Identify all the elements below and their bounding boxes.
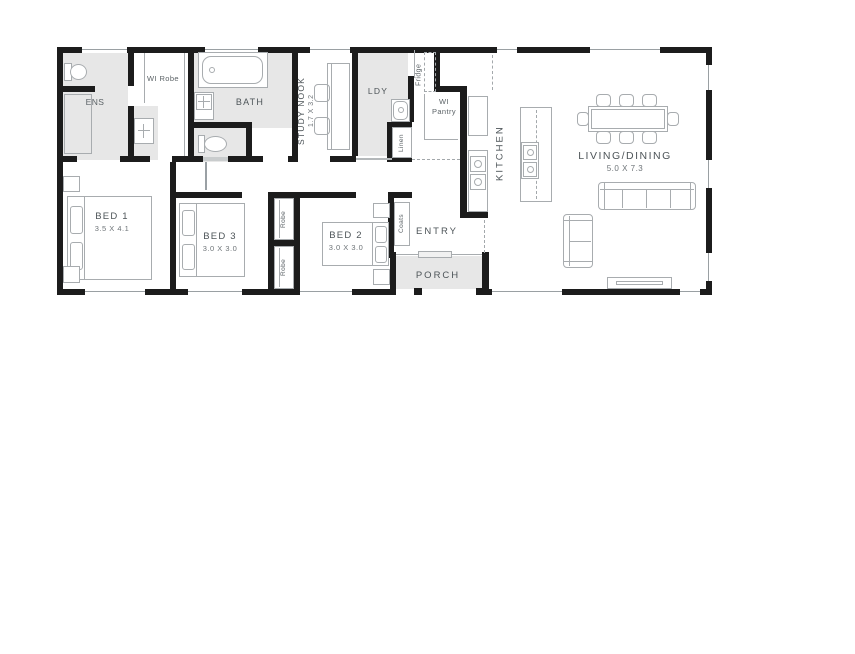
porch-post bbox=[414, 288, 422, 295]
cased-opening bbox=[412, 159, 460, 160]
laundry-tub-drain bbox=[398, 107, 404, 113]
wall-segment bbox=[57, 289, 712, 295]
robe-shelf-line bbox=[144, 53, 145, 103]
basin bbox=[196, 94, 212, 110]
room-label-ldy: LDY bbox=[358, 86, 398, 97]
room-label-bath: BATH bbox=[230, 97, 270, 109]
toilet-bowl bbox=[204, 136, 227, 152]
dining-chair bbox=[642, 94, 657, 107]
sofa-armrest bbox=[563, 220, 593, 221]
room-label-ens: ENS bbox=[75, 97, 115, 108]
wall-segment bbox=[170, 162, 176, 295]
wall-segment bbox=[194, 122, 252, 128]
cased-opening bbox=[492, 55, 493, 90]
room-dims-bed2: 3.0 X 3.0 bbox=[316, 243, 376, 252]
wall-segment bbox=[246, 122, 252, 158]
oven-knob bbox=[474, 160, 482, 168]
wall-segment bbox=[120, 156, 150, 162]
room-label-entry: ENTRY bbox=[407, 226, 467, 238]
window bbox=[590, 47, 660, 53]
wall-segment bbox=[460, 212, 488, 218]
window bbox=[706, 253, 712, 281]
wall-segment bbox=[482, 252, 489, 290]
room-dims-bed1: 3.5 X 4.1 bbox=[82, 224, 142, 233]
basin-cross bbox=[198, 101, 210, 102]
dining-chair bbox=[619, 94, 634, 107]
room-label-living-dining: LIVING/DINING bbox=[565, 150, 685, 164]
room-label-kitchen: KITCHEN bbox=[494, 116, 507, 190]
bed-headboard-line bbox=[84, 196, 85, 280]
room-label-study-nook: STUDY NOOK bbox=[296, 64, 307, 158]
dining-chair bbox=[667, 112, 679, 126]
window bbox=[82, 47, 127, 53]
room-label-wi-pantry: WI Pantry bbox=[426, 97, 462, 117]
pillow bbox=[375, 226, 387, 243]
room-label-porch: PORCH bbox=[408, 270, 468, 282]
tv-unit-inner bbox=[616, 281, 663, 285]
sofa-armrest bbox=[690, 182, 691, 210]
basin-cross bbox=[203, 96, 204, 108]
porch-opening bbox=[396, 289, 482, 295]
sofa-large bbox=[598, 182, 696, 210]
door-threshold bbox=[203, 157, 228, 161]
window bbox=[188, 289, 242, 295]
room-label-bed3: BED 3 bbox=[190, 231, 250, 243]
room-label-bed2: BED 2 bbox=[316, 230, 376, 242]
robe-shelf-line bbox=[184, 53, 185, 156]
bedside-table bbox=[63, 176, 80, 192]
window bbox=[300, 289, 352, 295]
vanity-basin bbox=[134, 118, 154, 144]
dining-chair bbox=[619, 131, 634, 144]
label-fridge: Fridge bbox=[414, 56, 424, 94]
wall-segment bbox=[57, 156, 77, 162]
desk-chair bbox=[314, 117, 330, 135]
sofa-back-line bbox=[600, 189, 694, 190]
room-label-bed1: BED 1 bbox=[82, 211, 142, 223]
room-dims-study-nook: 1.7 X 3.2 bbox=[307, 76, 316, 146]
bedside-table bbox=[373, 203, 390, 218]
window bbox=[492, 289, 562, 295]
window bbox=[497, 47, 517, 53]
label-coats: Coats bbox=[397, 210, 407, 238]
sofa-divider bbox=[670, 189, 671, 208]
toilet-bowl bbox=[70, 64, 87, 80]
pillow bbox=[375, 246, 387, 263]
floor-plan: ENS WI Robe BATH STUDY NOOK 1.7 X 3.2 LD… bbox=[0, 0, 855, 654]
window bbox=[706, 65, 712, 90]
sofa-divider bbox=[569, 241, 591, 242]
room-dims-living-dining: 5.0 X 7.3 bbox=[565, 164, 685, 173]
sofa-armrest bbox=[563, 261, 593, 262]
sofa-divider bbox=[622, 189, 623, 208]
wall-segment bbox=[352, 47, 358, 156]
cooktop-knob bbox=[474, 178, 482, 186]
wall-segment bbox=[300, 192, 356, 198]
window bbox=[680, 289, 700, 295]
front-door-sill bbox=[418, 251, 452, 258]
desk-chair bbox=[314, 84, 330, 102]
dining-chair bbox=[577, 112, 589, 126]
desk-line bbox=[331, 63, 332, 150]
room-dims-bed3: 3.0 X 3.0 bbox=[190, 244, 250, 253]
kitchen-bench bbox=[468, 96, 488, 136]
fridge-space bbox=[424, 52, 436, 92]
label-linen: Linen bbox=[396, 130, 408, 156]
bathtub-drain bbox=[209, 67, 215, 73]
sink-drain bbox=[527, 166, 534, 173]
window bbox=[85, 289, 145, 295]
wall-segment bbox=[57, 47, 63, 295]
sink-drain bbox=[527, 149, 534, 156]
wall-segment bbox=[57, 86, 95, 92]
dining-chair bbox=[596, 131, 611, 144]
door-leaf bbox=[205, 162, 207, 190]
sofa-armrest bbox=[604, 182, 605, 210]
dining-table-inner bbox=[591, 109, 665, 129]
dining-chair bbox=[596, 94, 611, 107]
sofa-divider bbox=[646, 189, 647, 208]
room-label-wi-robe: WI Robe bbox=[146, 74, 180, 84]
bedside-table bbox=[63, 266, 80, 283]
label-robe-bed3: Robe bbox=[279, 205, 289, 233]
wall-segment bbox=[128, 47, 134, 86]
bedside-table bbox=[373, 269, 390, 285]
basin-cross bbox=[138, 130, 150, 131]
basin-cross bbox=[143, 124, 144, 138]
label-robe-bed2: Robe bbox=[279, 253, 289, 281]
window bbox=[310, 47, 350, 53]
wall-segment bbox=[390, 252, 396, 295]
cased-opening bbox=[484, 220, 485, 253]
wall-segment bbox=[330, 156, 356, 162]
wall-segment bbox=[176, 192, 242, 198]
window bbox=[706, 160, 712, 188]
door-leaf bbox=[356, 158, 392, 160]
dining-chair bbox=[642, 131, 657, 144]
